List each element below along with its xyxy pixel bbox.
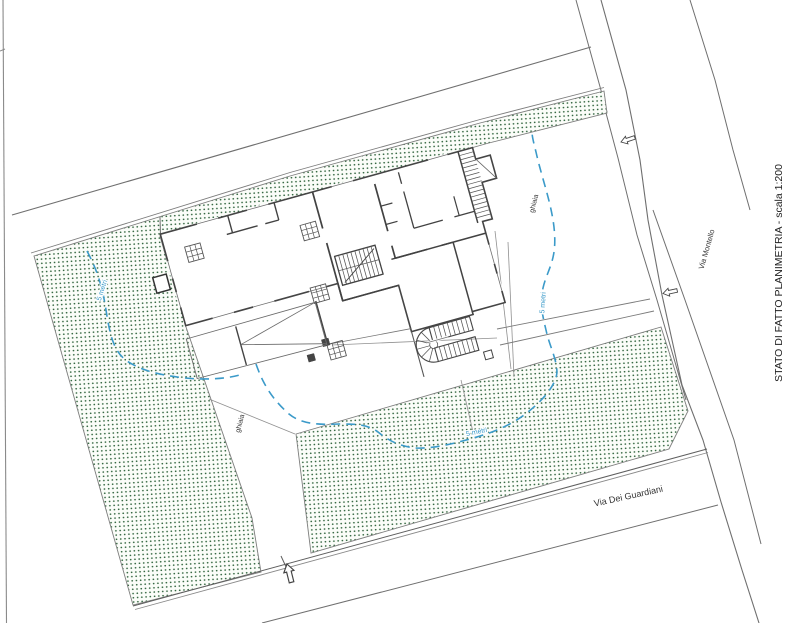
svg-text:STATO DI FATTO PLANIMETRIA -: STATO DI FATTO PLANIMETRIA - scala 1:200 [773, 164, 785, 382]
